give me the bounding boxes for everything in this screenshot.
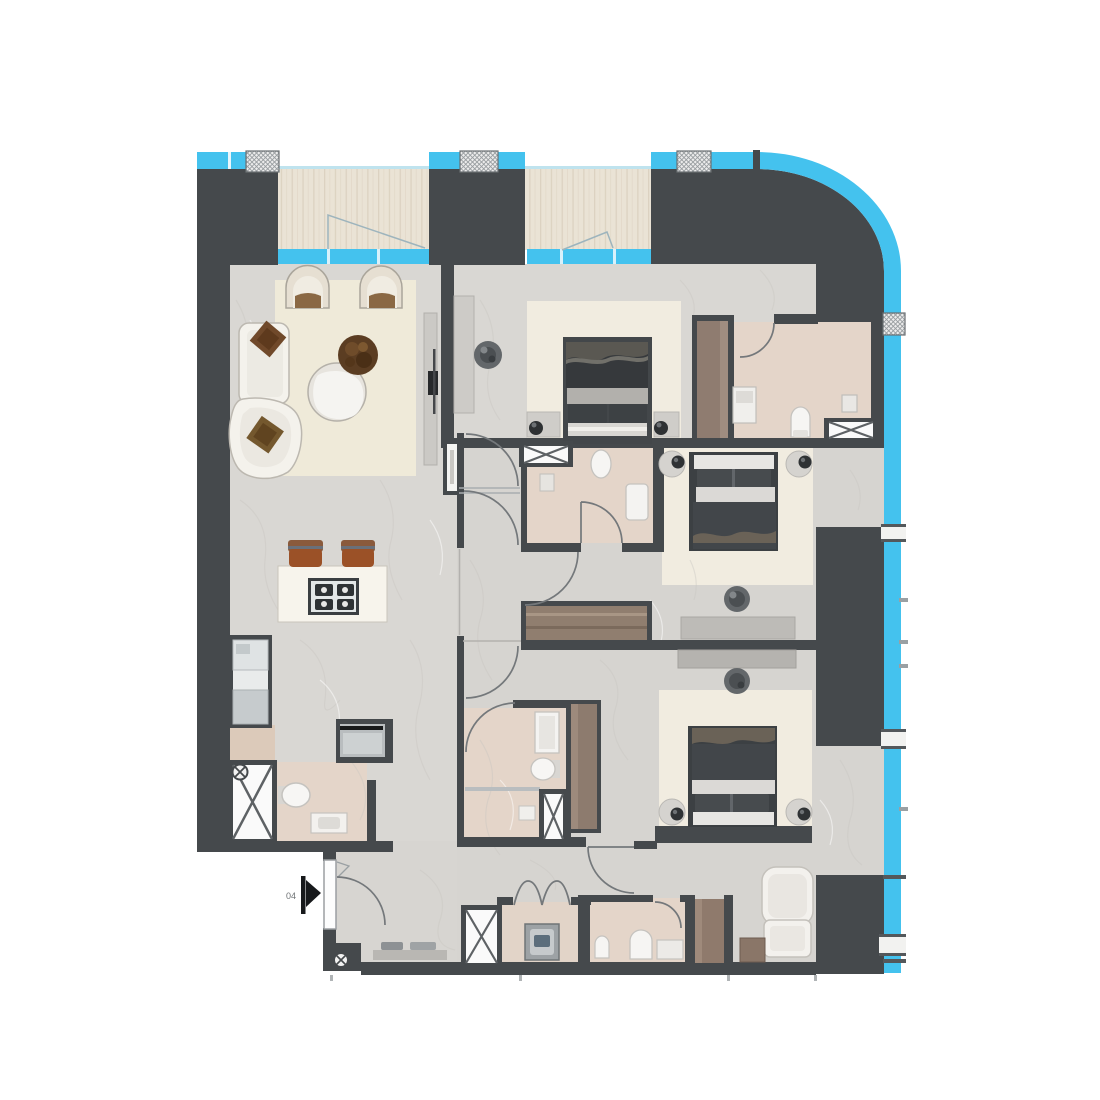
svg-text:04: 04	[286, 891, 296, 901]
